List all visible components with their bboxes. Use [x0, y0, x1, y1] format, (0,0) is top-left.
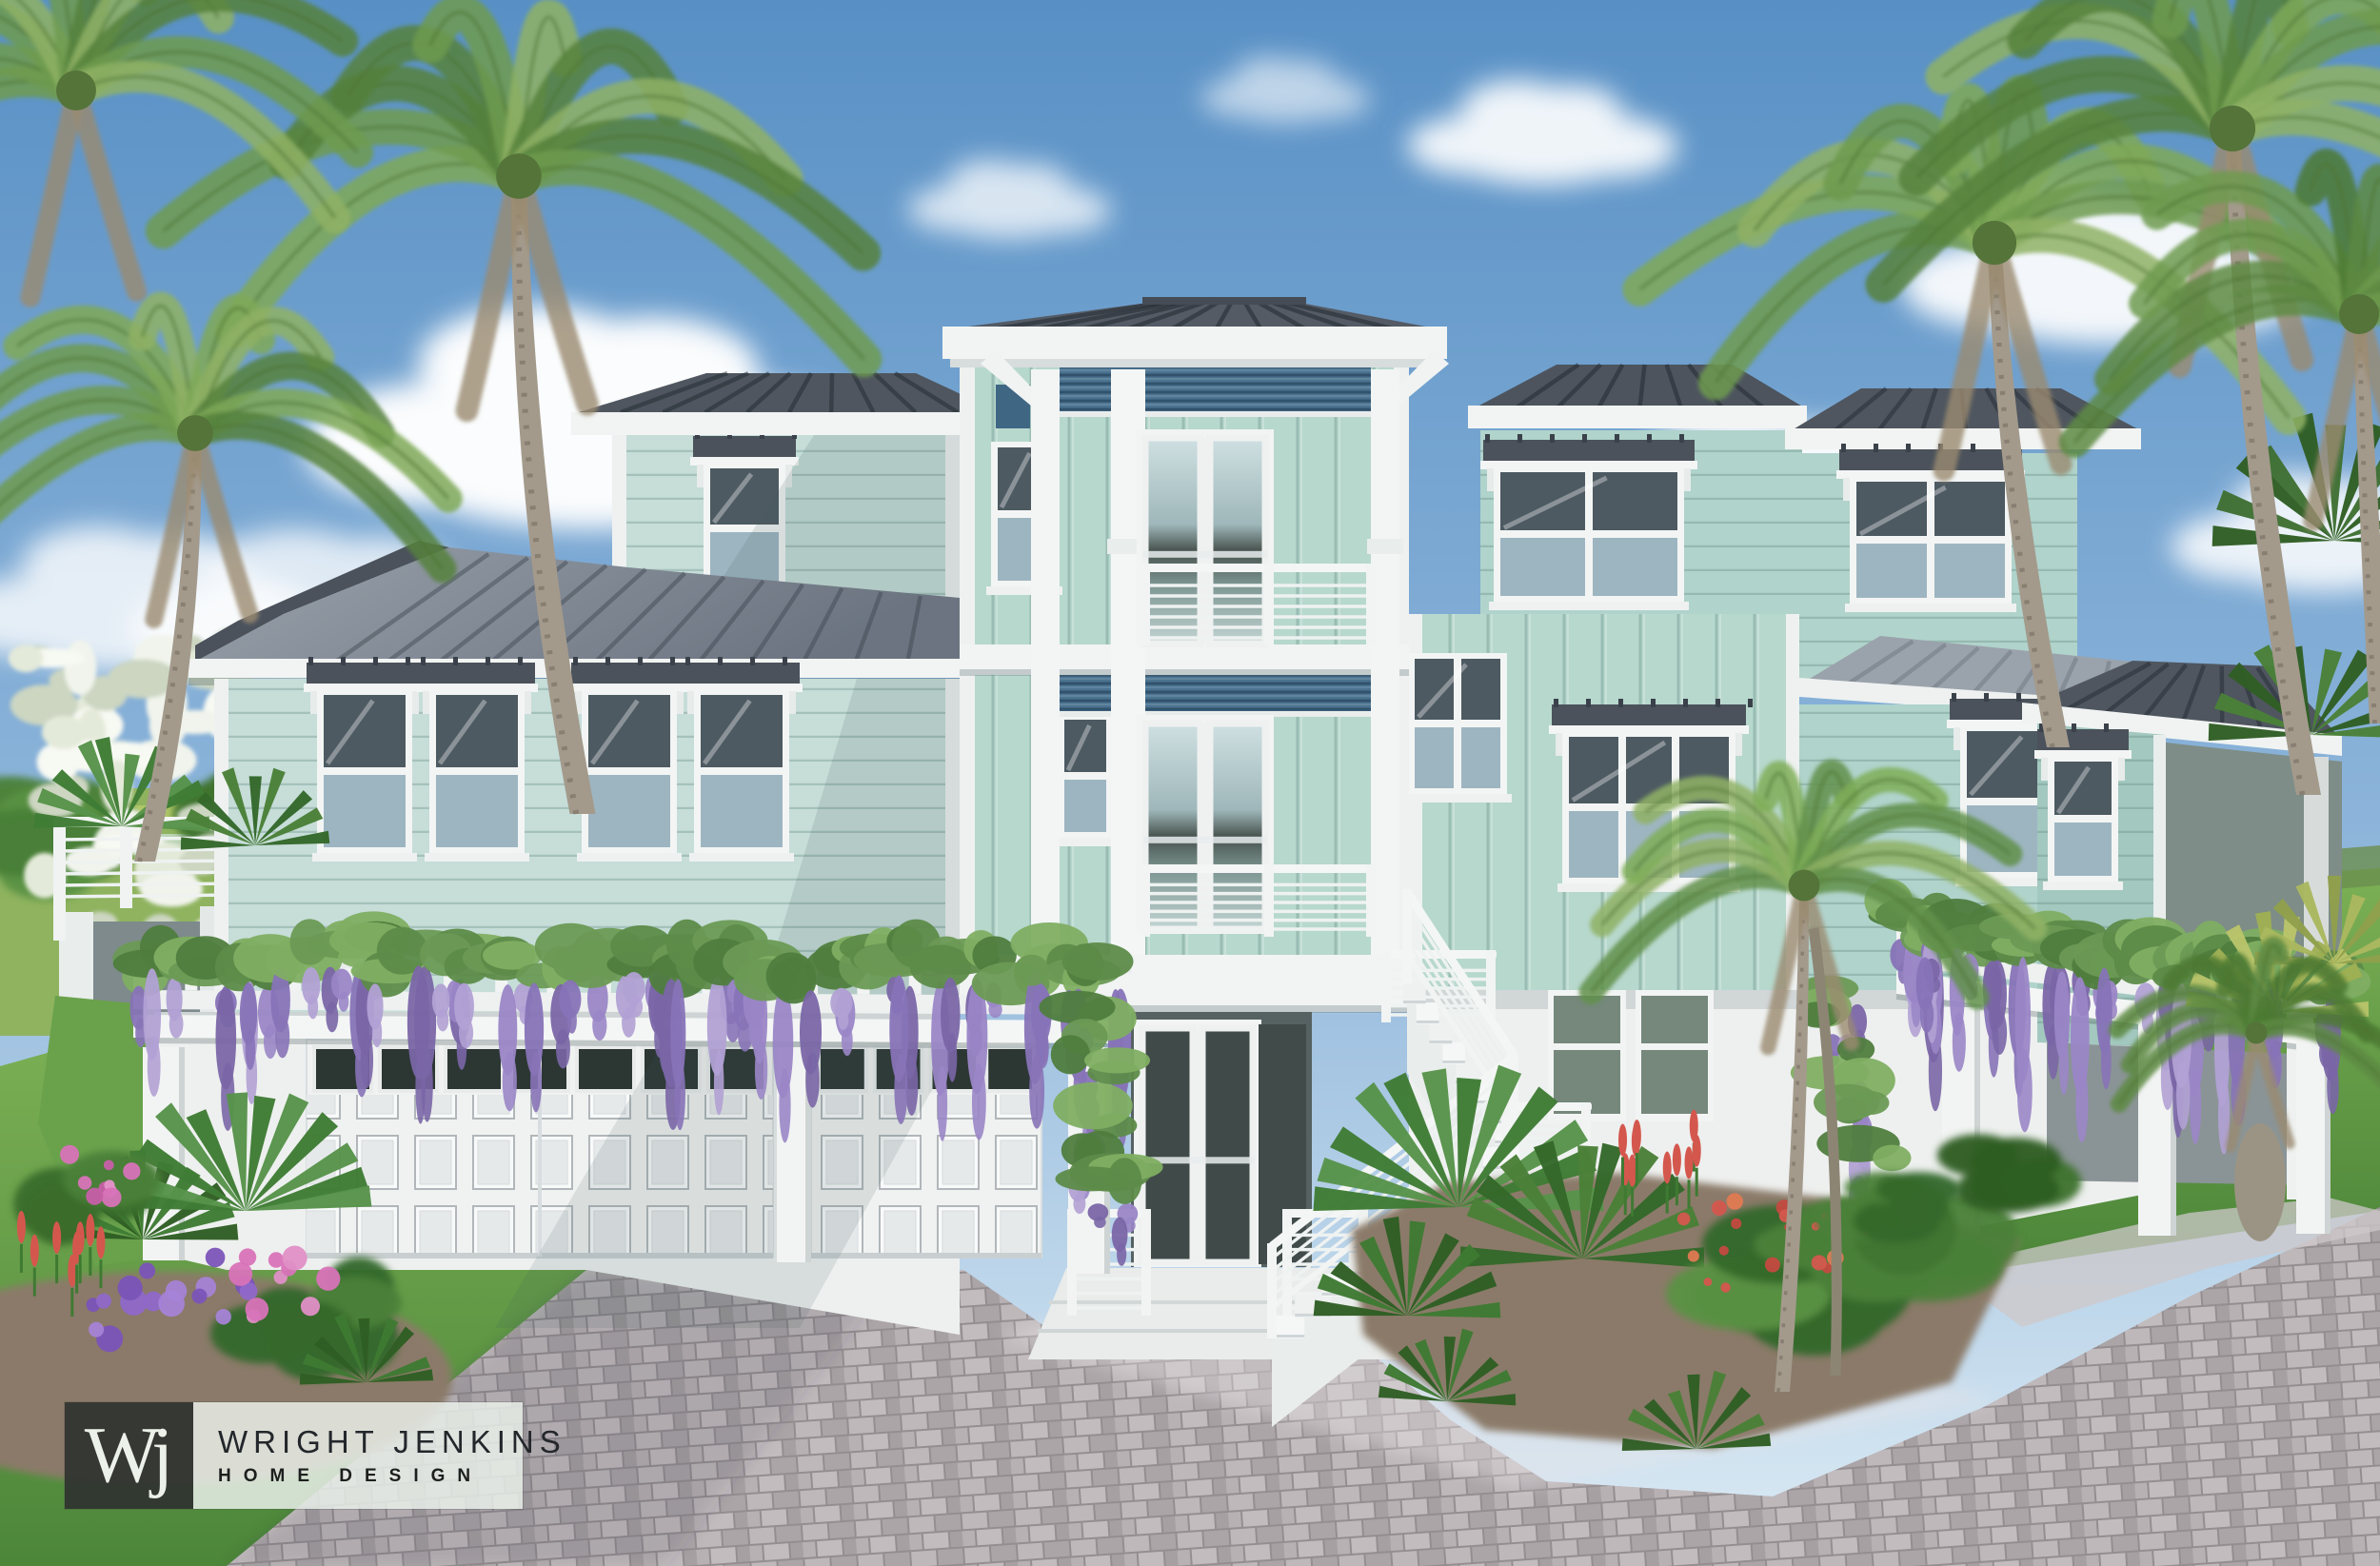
brand-name-panel: WRIGHT JENKINS HOME DESIGN [193, 1402, 523, 1509]
window-awning [419, 663, 535, 685]
window [1403, 653, 1512, 803]
window [304, 657, 426, 862]
window [1836, 444, 2025, 612]
window-awning [1839, 449, 2022, 472]
window-awning [571, 663, 687, 685]
window [568, 657, 690, 862]
window-awning [1483, 440, 1695, 463]
brand-line2: HOME DESIGN [218, 1466, 523, 1487]
brand-line1: WRIGHT JENKINS [218, 1424, 523, 1460]
scene-illustration [0, 0, 2380, 1566]
window [1554, 996, 1620, 1114]
garage-door-light [577, 1047, 634, 1091]
garage-door-light [446, 1047, 503, 1091]
window-awning [684, 663, 800, 685]
french-doors [1134, 1020, 1261, 1267]
window-awning [693, 436, 796, 459]
brand-watermark: Wj WRIGHT JENKINS HOME DESIGN [65, 1402, 523, 1509]
window [681, 657, 803, 862]
window [1053, 714, 1118, 846]
window [1641, 996, 1708, 1114]
fascia [571, 412, 1002, 435]
rendering-canvas: Wj WRIGHT JENKINS HOME DESIGN [0, 0, 2380, 1566]
brand-monogram-text: Wj [85, 1416, 166, 1496]
tower-fascia [942, 327, 1447, 359]
window [416, 657, 538, 862]
window-awning [307, 663, 423, 685]
brand-monogram: Wj [65, 1402, 193, 1509]
corner-post [1031, 369, 1060, 955]
bottle-palm-trunk [2234, 1123, 2286, 1241]
window [2034, 724, 2132, 890]
window [1480, 434, 1697, 610]
window-awning [1552, 704, 1746, 727]
